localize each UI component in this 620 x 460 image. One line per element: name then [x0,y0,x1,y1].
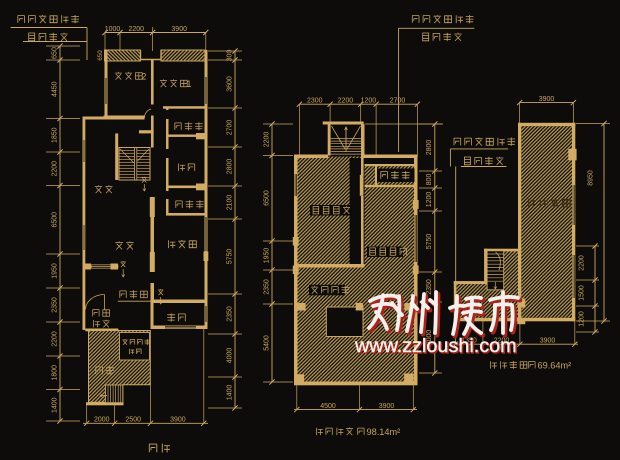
svg-text:5400: 5400 [264,335,271,351]
svg-text:2200: 2200 [264,132,271,148]
svg-text:5750: 5750 [227,249,234,265]
svg-text:69.64m²: 69.64m² [538,361,572,371]
svg-text:2350: 2350 [426,279,433,295]
svg-text:2300: 2300 [307,98,323,105]
svg-text:1: 1 [187,79,192,89]
svg-text:1400: 1400 [227,385,234,401]
svg-text:2500: 2500 [125,417,141,424]
svg-text:2200: 2200 [338,98,354,105]
svg-text:8950: 8950 [588,170,595,186]
svg-text:1800: 1800 [52,365,59,381]
svg-text:4450: 4450 [52,81,59,97]
svg-text:1950: 1950 [264,248,271,264]
svg-text:6500: 6500 [264,190,271,206]
svg-text:2000: 2000 [94,417,110,424]
svg-text:1200: 1200 [579,311,586,327]
svg-text:3900: 3900 [540,338,556,345]
svg-text:2350: 2350 [227,306,234,322]
svg-text:650: 650 [52,47,59,59]
svg-text:4000: 4000 [227,348,234,364]
svg-text:2200: 2200 [579,255,586,271]
svg-text:2200: 2200 [52,161,59,177]
svg-text:2350: 2350 [52,297,59,313]
svg-text:650: 650 [97,50,104,61]
svg-text:1200: 1200 [426,192,433,208]
svg-text:1950: 1950 [52,263,59,279]
svg-text:2350: 2350 [264,279,271,295]
svg-text:3900: 3900 [379,403,395,410]
svg-text:300: 300 [227,50,234,62]
svg-text:3900: 3900 [170,417,186,424]
svg-text:1400: 1400 [52,397,59,413]
svg-text:6500: 6500 [52,212,59,228]
svg-text:98.14m²: 98.14m² [367,427,401,437]
svg-text:2800: 2800 [227,159,234,175]
svg-text:2: 2 [142,72,147,82]
svg-text:3900: 3900 [539,96,555,103]
svg-text:1500: 1500 [579,285,586,301]
svg-text:4500: 4500 [320,403,336,410]
svg-text:2700: 2700 [227,120,234,136]
svg-text:2800: 2800 [426,140,433,156]
svg-text:2200: 2200 [129,26,145,33]
svg-text:1000: 1000 [105,26,121,33]
svg-text:1200: 1200 [361,98,377,105]
svg-text:www.zzloushi.com: www.zzloushi.com [354,335,517,357]
svg-text:2200: 2200 [52,331,59,347]
svg-text:2700: 2700 [390,98,406,105]
svg-text:5750: 5750 [426,234,433,250]
svg-text:1850: 1850 [52,127,59,143]
svg-text:2100: 2100 [227,195,234,211]
svg-text:3900: 3900 [171,26,187,33]
svg-text:800: 800 [426,174,433,186]
svg-text:3600: 3600 [227,76,234,92]
